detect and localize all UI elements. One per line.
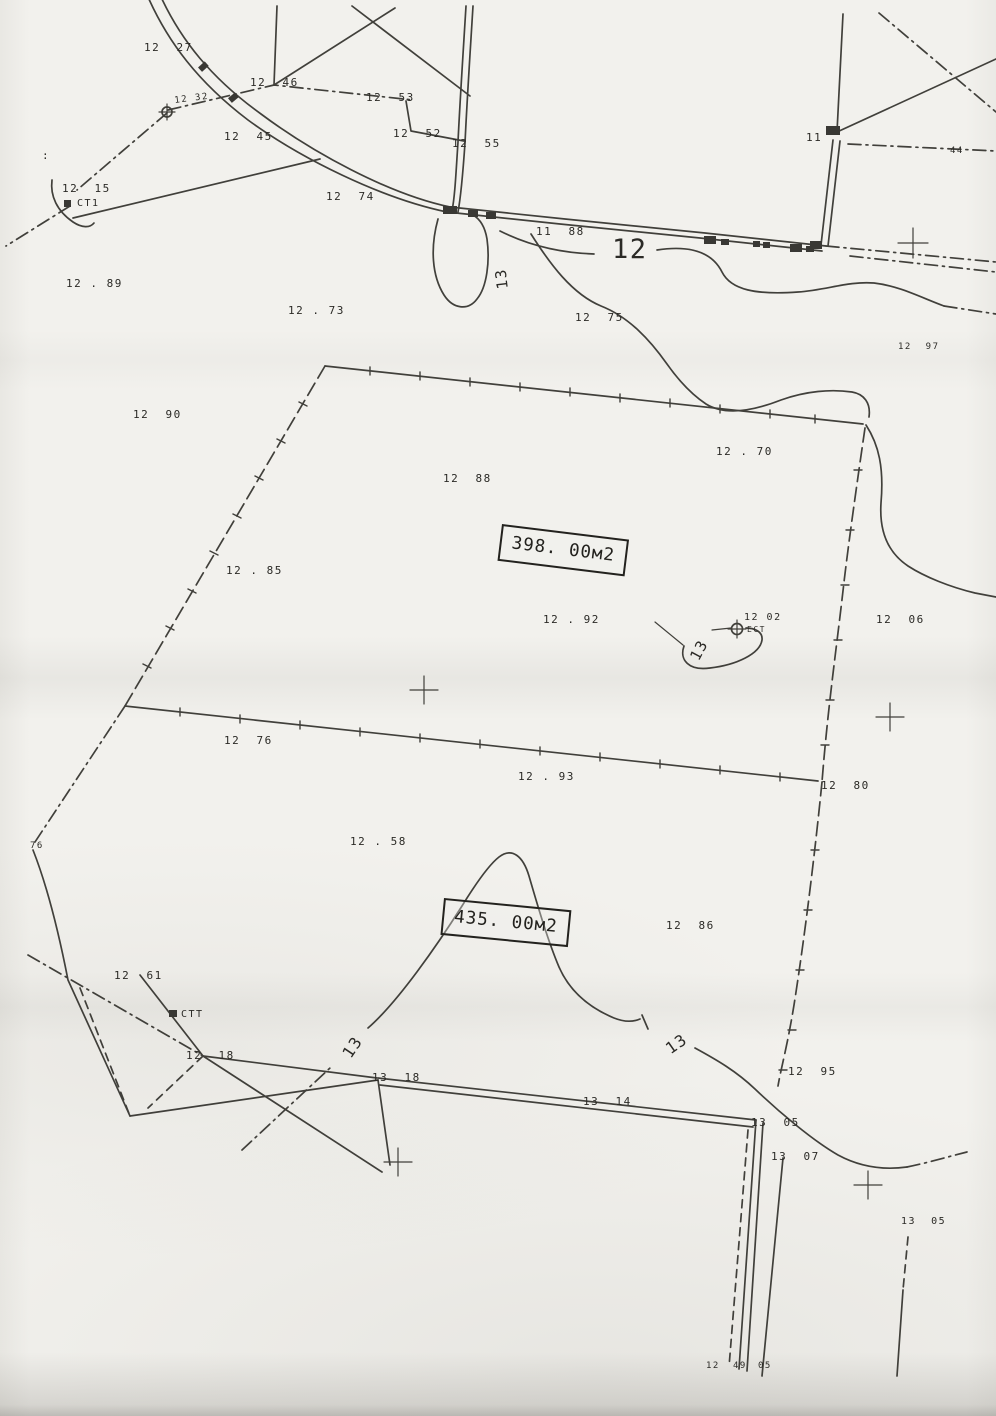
elevation-label: 12 97 [898, 343, 940, 352]
plot-boundary-right [778, 428, 865, 1086]
elevation-label: 11 [806, 132, 822, 143]
elevation-label: 76 [30, 842, 44, 851]
survey-lines-left [6, 113, 320, 246]
benchmark-label: ЕСТ [747, 626, 766, 634]
station-label: СТТ [181, 1010, 204, 1020]
elevation-label: 12 53 [366, 92, 415, 103]
elevation-label: 12 45 [224, 131, 273, 142]
elevation-label: 13 05 [751, 1117, 800, 1128]
stream-line-lower [866, 425, 996, 597]
elevation-label: 13 18 [372, 1072, 421, 1083]
elevation-label: 12 . 93 [518, 771, 575, 782]
elevation-label: 12 15 [62, 183, 111, 194]
grid-cross-icon [384, 228, 928, 1199]
pole-marks [198, 61, 840, 252]
station-square-icon [169, 1010, 177, 1017]
contour-teardrop [433, 215, 488, 307]
elevation-label: 12 90 [133, 409, 182, 420]
elevation-label: 05 [758, 1362, 772, 1371]
elevation-label: : [42, 150, 50, 161]
elevation-label: 13 14 [583, 1096, 632, 1107]
elevation-label: 12 27 [144, 42, 193, 53]
elevation-label: 12 [706, 1362, 720, 1371]
scanned-cadastral-map-page: 12 2712 4612 5312 5212 5512 4512 3212 15… [0, 0, 996, 1416]
elevation-label: 12 76 [224, 735, 273, 746]
plot-boundary-lower-left [28, 850, 390, 1172]
elevation-label: 12 88 [443, 473, 492, 484]
elevation-label: 12 . 89 [66, 278, 123, 289]
stream-line [531, 234, 869, 417]
elevation-label: 13 05 [901, 1217, 946, 1227]
elevation-label: 13 07 [771, 1151, 820, 1162]
map-drawing [0, 0, 996, 1416]
station-square-icon [64, 200, 71, 207]
elevation-label: 12 95 [788, 1066, 837, 1077]
boundary-bottom-right [897, 1237, 908, 1376]
pole-line-top-middle [452, 6, 473, 212]
elevation-label: 12 86 [666, 920, 715, 931]
survey-lines-top-right [821, 13, 996, 246]
elevation-label: 12 . 70 [716, 446, 773, 457]
elevation-label: 12 61 [114, 970, 163, 981]
elevation-label: 12 55 [452, 138, 501, 149]
elevation-label: 12 75 [575, 312, 624, 323]
elevation-label: 12 74 [326, 191, 375, 202]
elevation-label: 12 02 [744, 613, 782, 623]
elevation-label: 12 . 58 [350, 836, 407, 847]
elevation-label: 12 52 [393, 128, 442, 139]
elevation-label: 12 . 73 [288, 305, 345, 316]
elevation-label: 49 [733, 1362, 747, 1371]
road-bottom [378, 1078, 783, 1376]
elevation-label: 12 . 85 [226, 565, 283, 576]
road-curve-top-left [148, 0, 450, 212]
contour-line-13 [242, 853, 967, 1168]
contour-label-13: 13 [493, 267, 510, 290]
elevation-label: 12 80 [821, 780, 870, 791]
elevation-label: 12 18 [186, 1050, 235, 1061]
station-label: СТ1 [77, 199, 100, 209]
contour-label-12: 12 [612, 236, 648, 263]
elevation-label: 11 88 [536, 226, 585, 237]
elevation-label: 12 46 [250, 77, 299, 88]
elevation-label: 12 06 [876, 614, 925, 625]
elevation-label: 44 [950, 147, 964, 156]
elevation-label: 12 . 92 [543, 614, 600, 625]
